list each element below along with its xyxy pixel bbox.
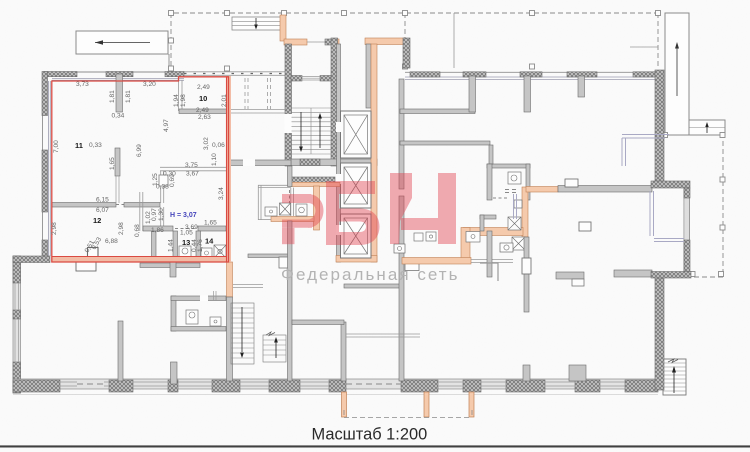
svg-text:1,81: 1,81	[125, 90, 132, 103]
svg-text:1,44: 1,44	[168, 239, 175, 252]
svg-text:3,02: 3,02	[203, 137, 210, 150]
svg-text:12: 12	[93, 216, 101, 225]
svg-text:6,99: 6,99	[136, 144, 143, 157]
svg-text:Масштаб 1:200: Масштаб 1:200	[312, 426, 428, 444]
svg-text:1,94: 1,94	[173, 94, 180, 107]
svg-text:2,01: 2,01	[221, 94, 228, 107]
svg-text:0,06: 0,06	[212, 142, 225, 149]
svg-text:1,86: 1,86	[151, 227, 164, 234]
svg-text:13: 13	[182, 238, 190, 247]
svg-text:H = 3,07: H = 3,07	[170, 212, 197, 219]
svg-text:4,97: 4,97	[163, 119, 170, 132]
svg-text:1,98: 1,98	[180, 94, 187, 107]
svg-text:Федеральная сеть: Федеральная сеть	[281, 265, 459, 284]
svg-text:6,88: 6,88	[105, 238, 118, 245]
svg-text:1,81: 1,81	[109, 90, 116, 103]
svg-text:10: 10	[199, 94, 207, 103]
svg-text:3,67: 3,67	[186, 171, 199, 178]
svg-text:11: 11	[75, 141, 83, 150]
svg-text:0,33: 0,33	[89, 142, 102, 149]
svg-text:3,24: 3,24	[218, 187, 225, 200]
svg-text:2,98: 2,98	[118, 222, 125, 235]
svg-text:1,65: 1,65	[109, 157, 116, 170]
svg-text:14: 14	[205, 237, 214, 246]
svg-text:1,30: 1,30	[158, 208, 165, 221]
svg-text:2,63: 2,63	[198, 114, 211, 121]
svg-text:3,20: 3,20	[143, 81, 156, 88]
svg-text:2,49: 2,49	[197, 84, 210, 91]
svg-text:7,00: 7,00	[53, 140, 60, 153]
svg-text:0,34: 0,34	[112, 113, 125, 120]
svg-text:0,97: 0,97	[151, 208, 158, 221]
svg-text:3,73: 3,73	[76, 81, 89, 88]
svg-text:1,10: 1,10	[211, 153, 218, 166]
svg-text:0,38: 0,38	[156, 184, 169, 191]
svg-text:6,15: 6,15	[96, 197, 109, 204]
svg-text:2,98: 2,98	[51, 222, 58, 235]
svg-text:3,75: 3,75	[185, 162, 198, 169]
svg-text:1,05: 1,05	[180, 230, 193, 237]
svg-text:1,76: 1,76	[197, 239, 204, 252]
svg-text:0,68: 0,68	[134, 224, 141, 237]
svg-text:6,07: 6,07	[96, 207, 109, 214]
svg-text:0,69: 0,69	[169, 174, 176, 187]
svg-text:2,49: 2,49	[196, 107, 209, 114]
svg-text:1,65: 1,65	[204, 220, 217, 227]
